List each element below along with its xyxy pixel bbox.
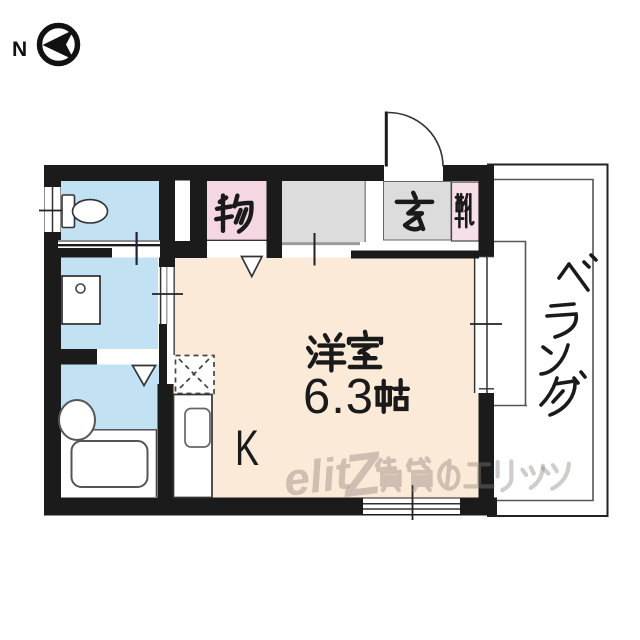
svg-text:N: N (12, 38, 27, 61)
svg-text:6.3: 6.3 (303, 370, 373, 424)
svg-text:K: K (235, 420, 259, 476)
